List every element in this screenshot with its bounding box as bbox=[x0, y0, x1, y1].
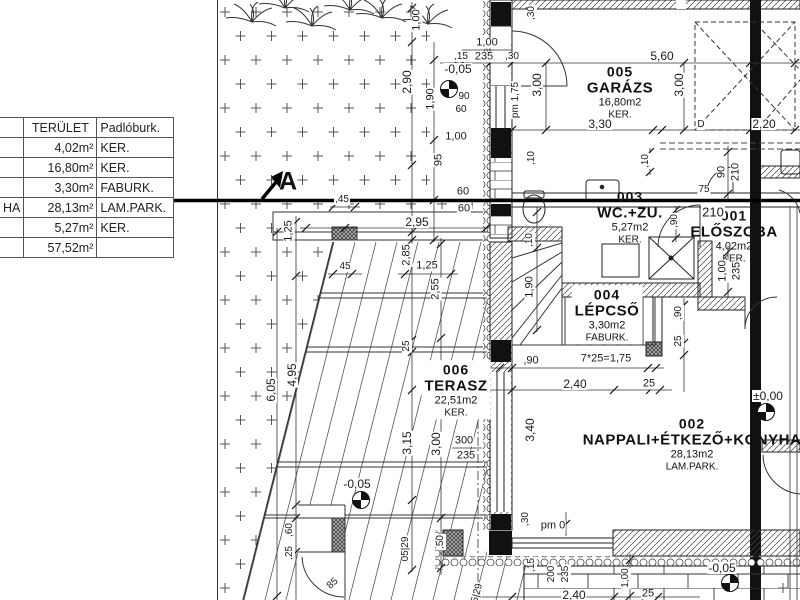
dimension-label: ,90 bbox=[674, 305, 684, 321]
skylight-x-box bbox=[695, 22, 800, 130]
room-num: 005 bbox=[587, 63, 653, 79]
room-num: 003 bbox=[597, 188, 663, 204]
table-cell bbox=[0, 158, 24, 178]
dimension-label: 25 bbox=[642, 379, 656, 390]
level-value: -0,05 bbox=[707, 562, 736, 574]
dimension-label: 1,00 bbox=[475, 38, 498, 49]
dimension-label: 5,60 bbox=[649, 50, 674, 62]
dimension-label: 2,55 bbox=[431, 277, 442, 300]
table-cell: 28,13m² bbox=[24, 198, 97, 218]
insulation-dots-south bbox=[440, 556, 800, 566]
dimension-label: ,30 bbox=[527, 5, 537, 21]
level-marker-icon bbox=[352, 491, 370, 509]
dimension-label: 2,85 bbox=[402, 243, 413, 266]
dimension-label: ,60 bbox=[285, 522, 295, 538]
table-row: 4,02m²KER. bbox=[0, 138, 174, 158]
level-value: ±0,00 bbox=[752, 390, 784, 402]
level-marker-icon bbox=[757, 403, 775, 421]
room-label-002: 002NAPPALI+ÉTKEZŐ+KONYHA28,13m2LAM.PARK. bbox=[583, 415, 800, 472]
dimension-label: 3,30 bbox=[587, 118, 612, 130]
area-table-header: TERÜLET bbox=[24, 118, 97, 138]
table-cell: KER. bbox=[97, 158, 174, 178]
room-area: 4,02m2 bbox=[690, 241, 777, 254]
insulation-dots-west bbox=[483, 0, 491, 530]
dimension-label: 60 bbox=[454, 105, 467, 115]
dimension-label: 25 bbox=[641, 589, 655, 600]
appliance-icon bbox=[602, 244, 639, 277]
dimension-label: 235 bbox=[474, 52, 494, 63]
dimension-label: 1,90 bbox=[426, 87, 437, 110]
dimension-label: 210 bbox=[701, 206, 725, 219]
table-cell bbox=[0, 138, 24, 158]
table-cell bbox=[0, 178, 24, 198]
dimension-label: 60 bbox=[457, 204, 471, 215]
table-cell bbox=[97, 238, 174, 258]
dimension-label: ,10 bbox=[525, 232, 535, 248]
dimension-label: 60 bbox=[456, 187, 470, 198]
dimension-label: 95 bbox=[434, 153, 445, 167]
room-name: LÉPCSŐ bbox=[575, 302, 640, 319]
table-cell bbox=[0, 238, 24, 258]
dimension-label: 1,25 bbox=[415, 261, 438, 272]
dimension-label: 75 bbox=[697, 185, 710, 195]
level-value: -0,05 bbox=[443, 63, 472, 75]
dimension-label: 3,00 bbox=[430, 431, 442, 456]
dimension-label: 7*25=1,75 bbox=[580, 354, 632, 365]
table-row: HA28,13m²LAM.PARK. bbox=[0, 198, 174, 218]
dimension-label: 2,40 bbox=[562, 378, 587, 390]
room-name: TERASZ bbox=[425, 377, 488, 394]
dimension-label: 3,15 bbox=[401, 430, 413, 455]
table-cell: 16,80m² bbox=[24, 158, 97, 178]
room-area: 28,13m2 bbox=[583, 449, 800, 462]
dimension-label: 1,00 bbox=[718, 259, 729, 282]
dimension-label: 1,00 bbox=[412, 8, 423, 31]
dimension-label: 90 bbox=[717, 165, 728, 179]
table-cell: 5,27m² bbox=[24, 218, 97, 238]
dimension-label: ,30 bbox=[521, 511, 531, 527]
dimension-label: 90 bbox=[457, 92, 470, 102]
table-cell bbox=[0, 218, 24, 238]
room-area: 16,80m2 bbox=[587, 97, 653, 110]
room-name: WC.+ZU. bbox=[597, 204, 663, 221]
dimension-label: ,30 bbox=[504, 52, 520, 62]
dimension-label: 1,00 bbox=[444, 132, 467, 143]
room-area: 3,30m2 bbox=[575, 320, 640, 333]
dimension-label: 1,25 bbox=[284, 219, 295, 242]
level-marker-icon bbox=[721, 574, 739, 592]
room-label-005: 005GARÁZS16,80m2KER. bbox=[587, 63, 653, 120]
dimension-label: 25 bbox=[402, 339, 412, 352]
table-cell: HA bbox=[0, 198, 24, 218]
table-row: 57,52m² bbox=[0, 238, 174, 258]
dimension-label: 25 bbox=[674, 334, 684, 347]
dimension-label: 235 bbox=[456, 451, 476, 462]
room-name: ELŐSZOBA bbox=[690, 223, 777, 240]
dimension-label: D bbox=[696, 120, 705, 130]
dimension-label: 3,00 bbox=[673, 72, 685, 97]
table-row: 3,30m²FABURK. bbox=[0, 178, 174, 198]
dimension-label: 1,00 bbox=[621, 567, 631, 588]
dimension-label: ,25 bbox=[285, 545, 295, 561]
table-cell: 57,52m² bbox=[24, 238, 97, 258]
dimension-label: pm 0 bbox=[540, 521, 566, 532]
room-area: 5,27m2 bbox=[597, 222, 663, 235]
dimension-label: ,15 bbox=[527, 557, 537, 573]
dimension-label: 1,90 bbox=[525, 275, 536, 298]
table-cell: KER. bbox=[97, 138, 174, 158]
dimension-label: ,90 bbox=[522, 356, 539, 367]
room-label-006: 006TERASZ22,51m2KER. bbox=[422, 360, 491, 419]
table-row: 16,80m²KER. bbox=[0, 158, 174, 178]
dimension-label: ,15 bbox=[453, 52, 469, 62]
dimension-label: 200 bbox=[547, 565, 557, 584]
floor-plan: TERÜLETPadlóburk. 4,02m²KER.16,80m²KER.3… bbox=[0, 0, 800, 600]
dimension-label: 3,40 bbox=[524, 417, 536, 442]
area-table-header bbox=[0, 118, 24, 138]
area-table-header: Padlóburk. bbox=[97, 118, 174, 138]
dimension-label: ,10 bbox=[641, 153, 651, 169]
dimension-label: 45 bbox=[338, 262, 351, 272]
dimension-label: 300 bbox=[454, 436, 474, 447]
room-name: NAPPALI+ÉTKEZŐ+KONYHA bbox=[583, 431, 800, 448]
room-area: 22,51m2 bbox=[425, 395, 488, 408]
table-cell: 3,30m² bbox=[24, 178, 97, 198]
room-name: GARÁZS bbox=[587, 79, 653, 96]
dimension-label: 3,00 bbox=[531, 72, 543, 97]
table-cell: FABURK. bbox=[97, 178, 174, 198]
section-marker-label: A bbox=[279, 168, 297, 197]
level-marker-icon bbox=[440, 80, 458, 98]
room-floor: KER. bbox=[597, 234, 663, 246]
dimension-label: 235 bbox=[732, 261, 743, 281]
room-num: 004 bbox=[575, 286, 640, 302]
dimension-label: ,50 bbox=[436, 534, 446, 550]
dimension-label: 6,05 bbox=[265, 377, 277, 402]
dimension-label: 2,40 bbox=[561, 589, 586, 600]
table-cell: LAM.PARK. bbox=[97, 198, 174, 218]
dimension-label: 2,90 bbox=[401, 69, 413, 94]
dimension-label: ,90 bbox=[670, 213, 680, 229]
dimension-label: 05|29 bbox=[401, 536, 411, 563]
area-table: TERÜLETPadlóburk. 4,02m²KER.16,80m²KER.3… bbox=[0, 117, 174, 258]
room-num: 006 bbox=[425, 361, 488, 377]
level-value: -0,05 bbox=[342, 478, 371, 490]
dimension-label: pm 1,75 bbox=[511, 81, 521, 119]
room-floor: LAM.PARK. bbox=[583, 461, 800, 473]
dimension-label: ,10 bbox=[527, 150, 537, 166]
dimension-label: 4,95 bbox=[286, 362, 298, 387]
dimension-label: 2,95 bbox=[404, 216, 429, 228]
dimension-label: 2,20 bbox=[751, 118, 776, 130]
table-cell: 4,02m² bbox=[24, 138, 97, 158]
dimension-label: 210 bbox=[731, 162, 742, 182]
table-row: 5,27m²KER. bbox=[0, 218, 174, 238]
table-cell: KER. bbox=[97, 218, 174, 238]
dimension-label: 235 bbox=[561, 565, 571, 584]
room-label-004: 004LÉPCSŐ3,30m2FABURK. bbox=[572, 285, 643, 344]
dimension-label: ,45 bbox=[334, 195, 350, 205]
room-floor: KER. bbox=[425, 407, 488, 419]
room-floor: FABURK. bbox=[575, 332, 640, 344]
terrace-planter-wall bbox=[273, 212, 490, 240]
room-label-003: 003WC.+ZU.5,27m2KER. bbox=[597, 188, 663, 245]
